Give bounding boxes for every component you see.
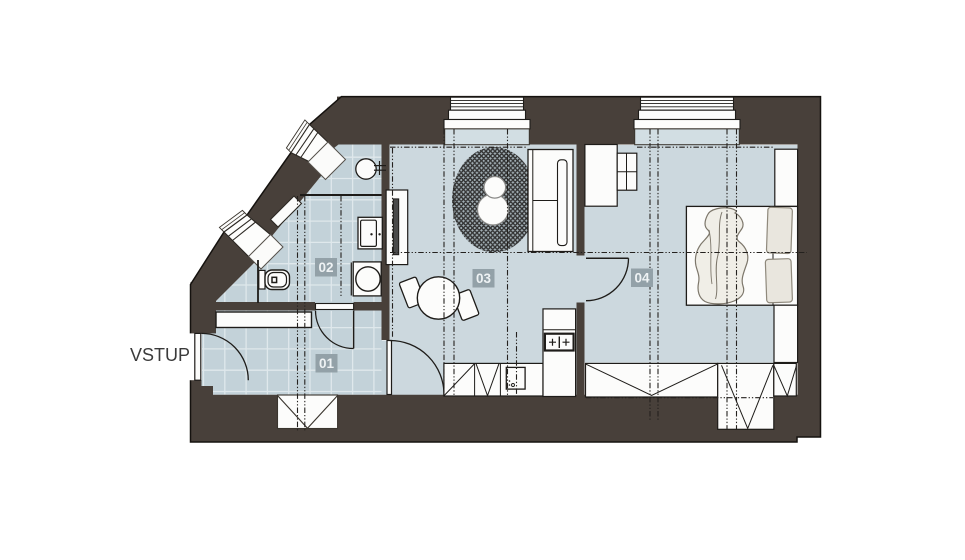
svg-text:01: 01	[319, 356, 335, 371]
svg-text:VSTUP: VSTUP	[130, 345, 190, 365]
svg-text:04: 04	[634, 271, 650, 286]
svg-text:02: 02	[318, 260, 333, 275]
svg-text:03: 03	[476, 271, 492, 286]
